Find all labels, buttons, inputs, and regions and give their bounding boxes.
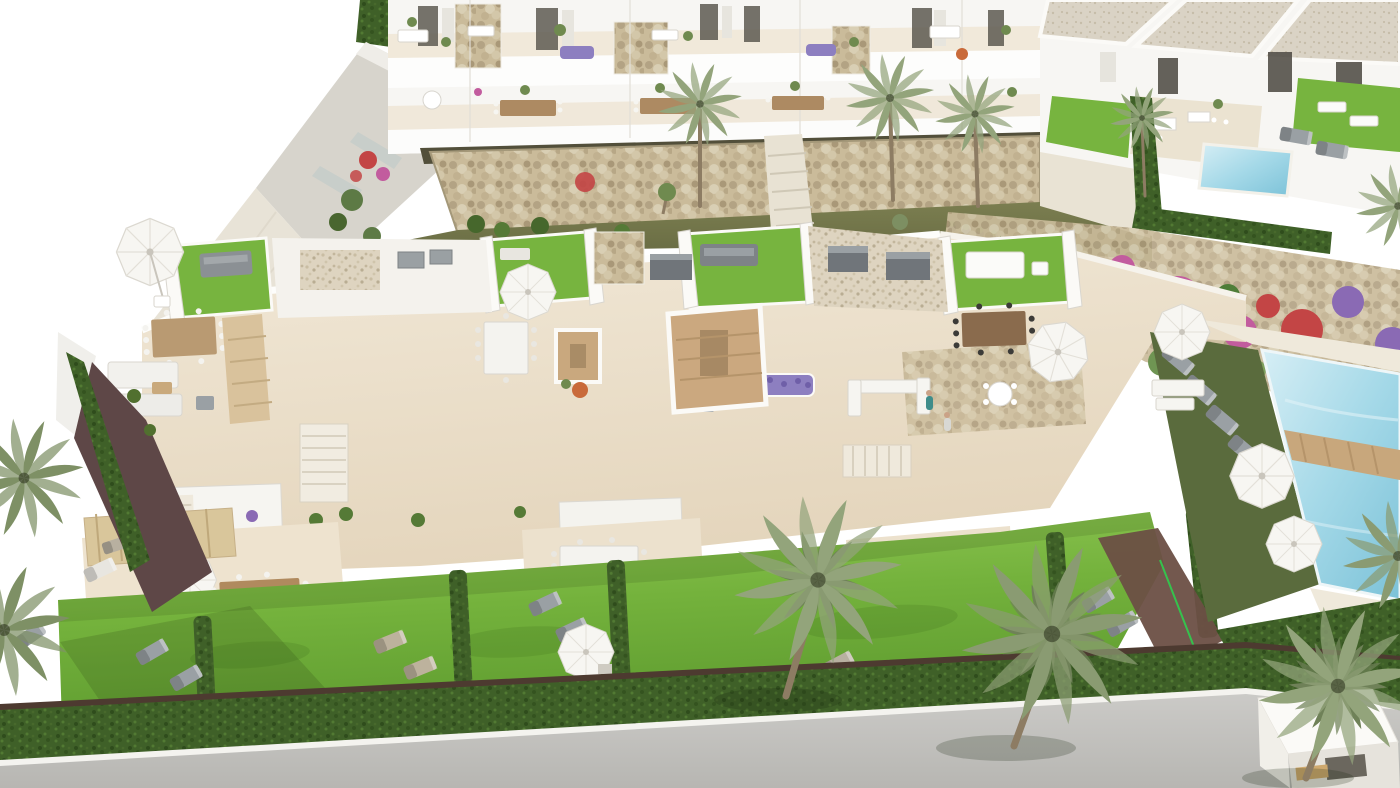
private-pool bbox=[1199, 144, 1292, 196]
ac-unit bbox=[398, 252, 424, 268]
lavender-planter bbox=[560, 46, 594, 59]
red-bush bbox=[575, 172, 595, 192]
path-bush bbox=[127, 389, 141, 403]
path-bush bbox=[144, 424, 156, 436]
render-canvas bbox=[0, 0, 1400, 788]
flower-pot bbox=[956, 48, 968, 60]
small-tree bbox=[658, 183, 676, 201]
dining-set bbox=[475, 313, 537, 383]
staircase bbox=[843, 445, 911, 477]
sun-lounger bbox=[1318, 102, 1346, 112]
sun-lounger bbox=[500, 248, 530, 260]
flower-pot bbox=[572, 382, 588, 398]
parasol bbox=[1230, 444, 1294, 508]
dining-table bbox=[772, 96, 824, 110]
niche-shadow bbox=[570, 344, 586, 368]
parasol bbox=[500, 264, 556, 320]
side-table bbox=[598, 664, 612, 674]
sofa-cushions bbox=[704, 248, 754, 256]
round-table bbox=[423, 91, 441, 109]
villa-shutter bbox=[1100, 52, 1116, 82]
sun-lounger bbox=[1350, 116, 1378, 126]
lavender-planter bbox=[806, 44, 836, 56]
aerial-render: Aerial 3D architectural rendering of a w… bbox=[0, 0, 1400, 788]
side-table bbox=[154, 296, 170, 307]
chair bbox=[1032, 262, 1048, 275]
sun-deck bbox=[199, 250, 253, 278]
parasol bbox=[1154, 304, 1210, 360]
stone-chimney bbox=[594, 232, 644, 284]
gravel-patch bbox=[300, 250, 380, 290]
roof-lawn bbox=[684, 226, 808, 308]
storage-box-top bbox=[650, 254, 692, 260]
round-table bbox=[988, 382, 1012, 406]
ac-unit bbox=[430, 250, 452, 264]
plant-pot bbox=[561, 379, 571, 389]
wood-deck bbox=[222, 314, 270, 424]
staircase bbox=[300, 424, 348, 502]
apartment-building bbox=[388, 0, 1040, 154]
dining-table bbox=[500, 100, 556, 116]
roof-lawn bbox=[168, 238, 272, 318]
daybed bbox=[966, 252, 1024, 278]
parasol bbox=[1266, 516, 1322, 572]
